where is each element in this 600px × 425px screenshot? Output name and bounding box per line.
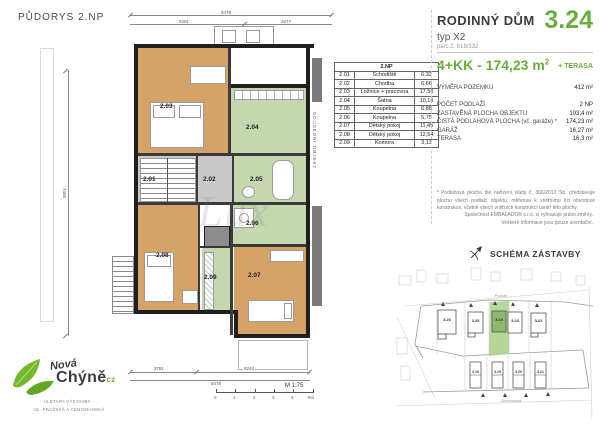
- footnote-text: Podlahová plocha dle nařízení vlády č. 3…: [437, 190, 595, 211]
- partition: [200, 246, 230, 248]
- scale-tick: [216, 389, 217, 393]
- logo-tagline-line: III.ETAPA VÝSTAVBY -: [6, 398, 132, 406]
- pillow-symbol: [179, 105, 201, 118]
- disposition-text: 4+KK - 174,23 m: [437, 57, 545, 73]
- scale-tick: [235, 389, 236, 393]
- spec-value: 2 NP: [580, 102, 593, 108]
- scale-number: 5m: [308, 395, 314, 400]
- room-no: 2.07: [335, 122, 355, 131]
- room-area: 6,32: [415, 71, 439, 80]
- neighbor-wall: [312, 206, 322, 306]
- wall-segment: [134, 310, 238, 314]
- scale-bar: [216, 392, 313, 393]
- parcel-number: parc.č. 616/332: [437, 44, 478, 50]
- table-row: 2.09Komora3,13: [335, 139, 439, 148]
- disclaimer: Společnost EMBALADOR s.r.o. si vyhrazuje…: [437, 211, 593, 227]
- house-label: 3.22: [535, 318, 544, 323]
- spec-row: VÝMĚRA POZEMKU 412 m²: [437, 85, 593, 91]
- house-label: 3.21: [537, 370, 544, 374]
- dimension-value: 3781: [153, 366, 165, 371]
- room-no: 2.02: [335, 80, 355, 89]
- spec-value: 103,4 m²: [569, 111, 593, 117]
- room-area: 10,19: [415, 97, 439, 106]
- room-no: 2.03: [335, 88, 355, 97]
- house-type: typ X2: [437, 32, 465, 43]
- footnote-mark: *: [437, 190, 439, 196]
- desk-symbol: [190, 66, 226, 84]
- spec-label: POČET PODLAŽÍ: [437, 102, 485, 108]
- logo-suffix: cz: [106, 375, 115, 384]
- room-area: 12,54: [415, 131, 439, 140]
- room-table: 2.NP 2.01Schodiště6,32 2.02Chodba6,66 2.…: [334, 62, 439, 148]
- table-row: 2.07Dětský pokoj11,45: [335, 122, 439, 131]
- shelf-symbol: [204, 252, 214, 310]
- room-label: 2.03: [160, 103, 173, 110]
- room-no: 2.08: [335, 131, 355, 140]
- table-row: 2.01Schodiště6,32: [335, 71, 439, 80]
- wall-segment: [234, 334, 310, 338]
- spec-row: GARÁŽ 16,27 m²: [437, 128, 593, 134]
- room-label: 2.08: [156, 252, 169, 259]
- room-area: 3,13: [415, 139, 439, 148]
- bathtub-symbol: [272, 160, 294, 200]
- wardrobe-symbol: [270, 250, 304, 262]
- room-name: Ložnice + pracovna: [355, 88, 415, 97]
- room-area: 5,75: [415, 114, 439, 123]
- room-label: 2.05: [250, 176, 263, 183]
- spec-row: ČISTÁ PODLAHOVÁ PLOCHA (vč. garáže) * 17…: [437, 119, 593, 125]
- wall-segment: [228, 84, 308, 88]
- room-label: 2.02: [203, 176, 216, 183]
- dimension-line: [130, 15, 332, 16]
- room-name: Komora: [355, 139, 415, 148]
- logo-name-text: Chýně: [56, 369, 106, 386]
- room-label: 2.01: [143, 176, 156, 183]
- scale-tick: [255, 389, 256, 393]
- scale-label: M 1:75: [285, 383, 303, 389]
- unit-number: 3.24: [527, 6, 593, 35]
- house-label: 3.25: [472, 318, 481, 323]
- table-row: 2.03Ložnice + pracovna17,50: [335, 88, 439, 97]
- spec-row: ZASTAVĚNÁ PLOCHA OBJEKTU 103,4 m²: [437, 111, 593, 117]
- watermark: Lux: [198, 186, 270, 237]
- scale-tick: [274, 389, 275, 393]
- dimension-value: 5201: [178, 19, 190, 24]
- fold-mark-line: [431, 10, 432, 224]
- room-no: 2.05: [335, 105, 355, 114]
- wardrobe-symbol: [234, 90, 304, 100]
- wall-segment: [306, 44, 310, 338]
- scale-number: 0: [214, 395, 217, 400]
- spec-row: TERASA 16,3 m²: [437, 136, 593, 142]
- dimension-value: 7455: [61, 188, 68, 198]
- house-title: RODINNÝ DŮM: [437, 13, 535, 28]
- house-label: 3.26: [443, 317, 452, 322]
- dimension-tick: [307, 370, 312, 375]
- room-name: Schodiště: [355, 71, 415, 80]
- room-name: Šatna: [355, 97, 415, 106]
- room-area: 6,66: [415, 80, 439, 89]
- table-row: 2.06Koupelna5,75: [335, 114, 439, 123]
- pillow-symbol: [284, 303, 292, 319]
- spec-value: 174,23 m²: [566, 119, 593, 125]
- neighbor-building-label: SOUSEDNÍ OBJEKT: [312, 112, 317, 182]
- spec-label: GARÁŽ: [437, 128, 458, 134]
- dimension-tick: [63, 334, 68, 339]
- spec-label: ČISTÁ PODLAHOVÁ PLOCHA (vč. garáže) *: [437, 119, 557, 125]
- room-area: 6,88: [415, 105, 439, 114]
- house-label: 3.23: [511, 318, 520, 323]
- room-name: Koupelna: [355, 105, 415, 114]
- spec-label: VÝMĚRA POZEMKU: [437, 85, 493, 91]
- terrace-badge: + TERASA: [537, 63, 593, 70]
- room-label: 2.07: [248, 272, 261, 279]
- table-row: 2.05Koupelna6,88: [335, 105, 439, 114]
- scale-number: 3: [272, 395, 275, 400]
- chimney-flue: [246, 30, 260, 43]
- disclaimer-line: Veškeré informace jsou pouze orientační.: [437, 219, 593, 227]
- room-no: 2.09: [335, 139, 355, 148]
- scale-number: 2: [253, 395, 256, 400]
- room-table-header: 2.NP: [335, 63, 439, 72]
- house-label: 3.18: [472, 370, 479, 374]
- disposition: 4+KK - 174,23 m2: [437, 57, 549, 73]
- house-label: 3.24: [495, 317, 504, 322]
- footnote: *Podlahová plocha dle nařízení vlády č. …: [437, 190, 595, 213]
- scale-tick: [293, 389, 294, 393]
- spec-value: 16,3 m²: [573, 136, 593, 142]
- desk-symbol: [182, 290, 198, 304]
- dimension-line: [68, 70, 69, 336]
- dimension-line: [130, 24, 332, 25]
- dimension-value: 8478: [220, 10, 232, 15]
- dimension-value: 5242: [243, 366, 255, 371]
- partition: [138, 153, 306, 156]
- roof-edge-line: [40, 48, 54, 322]
- room-no: 2.01: [335, 71, 355, 80]
- house-label: 3.19: [494, 370, 501, 374]
- dimension-tick: [329, 13, 334, 18]
- room-name: Dětský pokoj: [355, 122, 415, 131]
- spec-value: 16,27 m²: [569, 128, 593, 134]
- scale-number: 1: [233, 395, 236, 400]
- table-row: 2.04Šatna10,19: [335, 97, 439, 106]
- north-arrow-icon: [468, 244, 485, 261]
- room-no: 2.06: [335, 114, 355, 123]
- logo-tagline-line: UL. PRAŽSKÁ A CENOMANSKÁ: [6, 406, 132, 414]
- partition: [231, 244, 306, 247]
- scale-number: 4: [291, 395, 294, 400]
- chimney-flue: [222, 30, 236, 43]
- room-area: 17,50: [415, 88, 439, 97]
- street-label: Pražská: [495, 294, 508, 298]
- room-table-header-row: 2.NP: [335, 63, 439, 72]
- street-label: Cenomanská: [501, 399, 522, 403]
- site-plan-title: SCHÉMA ZÁSTAVBY: [490, 249, 581, 259]
- room-name: Koupelna: [355, 114, 415, 123]
- table-row: 2.02Chodba6,66: [335, 80, 439, 89]
- spec-value: 412 m²: [574, 85, 593, 91]
- spec-label: TERASA: [437, 136, 461, 142]
- plan-sheet: PŮDORYS 2.NP: [0, 0, 600, 425]
- disclaimer-line: Společnost EMBALADOR s.r.o. si vyhrazuje…: [437, 211, 593, 219]
- dimension-value: 3277: [280, 19, 292, 24]
- staircase-rail: [167, 158, 168, 202]
- wall-segment: [134, 44, 314, 48]
- neighbor-wall: [312, 58, 322, 102]
- dimension-value: 8478: [210, 381, 222, 386]
- site-plan-drawing: 3.26 3.25 3.24 3.23 3.22 3.18 3.19 3.20 …: [393, 266, 600, 425]
- room-name: Chodba: [355, 80, 415, 89]
- spec-list: VÝMĚRA POZEMKU 412 m² POČET PODLAŽÍ 2 NP…: [437, 85, 593, 145]
- dimension-line: [130, 372, 310, 373]
- spec-row: POČET PODLAŽÍ 2 NP: [437, 102, 593, 108]
- scale-tick: [313, 389, 314, 393]
- wall-segment: [134, 44, 138, 314]
- room-label: 2.04: [246, 124, 259, 131]
- room-no: 2.04: [335, 97, 355, 106]
- house-label: 3.20: [515, 370, 522, 374]
- divider: [437, 52, 593, 53]
- exterior-stairs-symbol: [112, 256, 134, 314]
- logo-tagline: III.ETAPA VÝSTAVBY - UL. PRAŽSKÁ A CENOM…: [6, 398, 132, 413]
- logo-name-line2: Chýněcz: [56, 369, 115, 387]
- spec-label: ZASTAVĚNÁ PLOCHA OBJEKTU: [437, 111, 527, 117]
- partition: [228, 48, 231, 153]
- room-label: 2.09: [204, 274, 217, 281]
- table-row: 2.08Dětský pokoj12,54: [335, 131, 439, 140]
- room-name: Dětský pokoj: [355, 131, 415, 140]
- room-area: 11,45: [415, 122, 439, 131]
